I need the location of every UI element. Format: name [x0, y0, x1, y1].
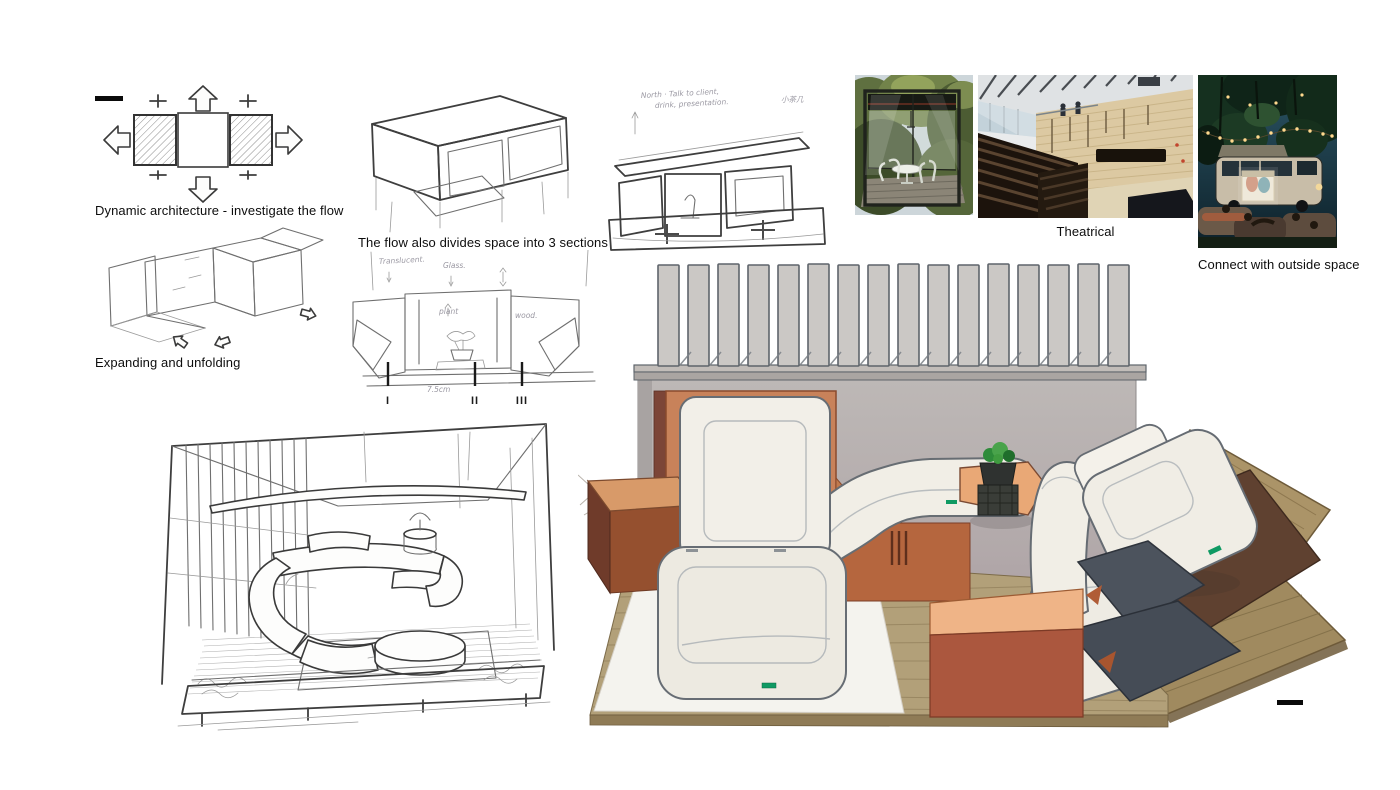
plan-left-cell: [134, 115, 176, 165]
theater-auditorium-photo: [978, 75, 1193, 218]
lifted-roof: [615, 138, 809, 176]
north-arrow-icon: [632, 112, 638, 134]
outdoor-van-cinema-photo: [1198, 75, 1337, 248]
tick-mark: [240, 171, 256, 179]
left-wall-slats: [168, 438, 316, 646]
floor-flap: [111, 312, 205, 342]
arrow-left-icon: [104, 126, 130, 154]
concept-note-cn: 小茶几: [781, 95, 804, 104]
vertical-slats: [658, 264, 1129, 366]
cube-front: [253, 250, 303, 316]
interior-rendering: [578, 253, 1350, 740]
caption-flow: Dynamic architecture - investigate the f…: [95, 203, 344, 218]
flow-diagram-drawing: [100, 85, 310, 203]
label-arrows: [387, 272, 453, 286]
sketch-ticks: [173, 257, 201, 290]
label-glass: Glass.: [443, 261, 466, 270]
label-translucent: Translucent.: [379, 255, 425, 266]
ground-scribble: [613, 234, 823, 241]
cabinet-open-middle: [448, 140, 504, 196]
room-sketch-drawing: [158, 388, 573, 733]
interior-rendering-art: [578, 253, 1350, 740]
roof-edge-line: [619, 132, 803, 160]
expanding-sketch: [85, 220, 325, 352]
cabinet-sketch: [352, 82, 580, 234]
right-wedge-hatch: [539, 318, 579, 370]
potted-plant: [978, 442, 1018, 515]
tick-mark: [150, 171, 166, 179]
arrow-right-icon: [276, 126, 302, 154]
open-flap-top: [261, 228, 323, 250]
concept-pod-sketch: North · Talk to client, drink, presentat…: [603, 88, 833, 253]
glass-box-lines: [405, 290, 511, 370]
auditorium-art: [978, 75, 1193, 218]
flow-diagram-sketch: [100, 85, 310, 203]
left-lounge-seat: [658, 397, 846, 699]
plus-mark: [240, 95, 256, 107]
projection-lines: [376, 172, 568, 228]
orange-storage-box: [930, 589, 1083, 717]
arrow-up-icon: [189, 86, 217, 111]
right-wall-lines: [458, 434, 538, 640]
wall-slot: [1096, 149, 1166, 162]
arrow-out-left-icon: [170, 332, 189, 350]
plus-mark: [150, 95, 166, 107]
plan-right-cell: [230, 115, 272, 165]
outdoor-cinema-art: [1198, 75, 1337, 248]
canopy-plane: [210, 486, 526, 513]
concept-pod-drawing: North · Talk to client, drink, presentat…: [603, 88, 833, 253]
center-bay: [665, 174, 721, 236]
glass-pavilion-art: [855, 75, 973, 215]
bonsai-scribble: [447, 331, 475, 350]
label-plant: plant: [438, 307, 459, 316]
seat-tag-green: [762, 683, 776, 688]
base-lines: [147, 302, 255, 328]
glass-pavilion-photo: [855, 75, 973, 215]
caption-sections: The flow also divides space into 3 secti…: [358, 235, 608, 250]
arrow-out-right-icon: [300, 306, 318, 321]
round-table: [892, 165, 922, 174]
arrow-down-icon: [189, 177, 217, 202]
canopy-hangers: [364, 432, 470, 482]
portfolio-page: Dynamic architecture - investigate the f…: [0, 0, 1400, 790]
slat-base-shadows: [680, 352, 1111, 365]
left-wedge: [353, 298, 405, 378]
three-section-sketch: Translucent. Glass. plant wood. 7.5cm I …: [343, 250, 618, 410]
caption-theatrical: Theatrical: [978, 224, 1193, 239]
arrow-out-down-icon: [210, 330, 234, 352]
left-wedge-hatch: [353, 320, 391, 370]
cube-side: [213, 248, 255, 316]
cabinet-door-panel: [508, 126, 562, 180]
bench-tag-green: [946, 500, 957, 504]
three-section-drawing: Translucent. Glass. plant wood. 7.5cm I …: [343, 250, 618, 410]
plan-center-cell: [178, 113, 228, 167]
slat-rail-bottom: [634, 372, 1146, 380]
expanding-drawing: [85, 220, 325, 352]
section-dash-mark: [1277, 700, 1303, 705]
room-perspective-sketch: [158, 388, 573, 733]
cube-top: [213, 238, 301, 262]
cabinet-drawing: [352, 82, 580, 234]
concept-note-line2: drink, presentation.: [655, 97, 729, 110]
caption-expanding: Expanding and unfolding: [95, 355, 240, 370]
person-silhouette: [1075, 101, 1080, 106]
left-pod: [619, 176, 663, 236]
bonsai-pot: [451, 350, 473, 360]
person-silhouette: [1060, 103, 1065, 108]
projection-screen: [1242, 171, 1274, 201]
ceiling-vent: [1138, 77, 1160, 86]
label-wood: wood.: [515, 311, 537, 320]
